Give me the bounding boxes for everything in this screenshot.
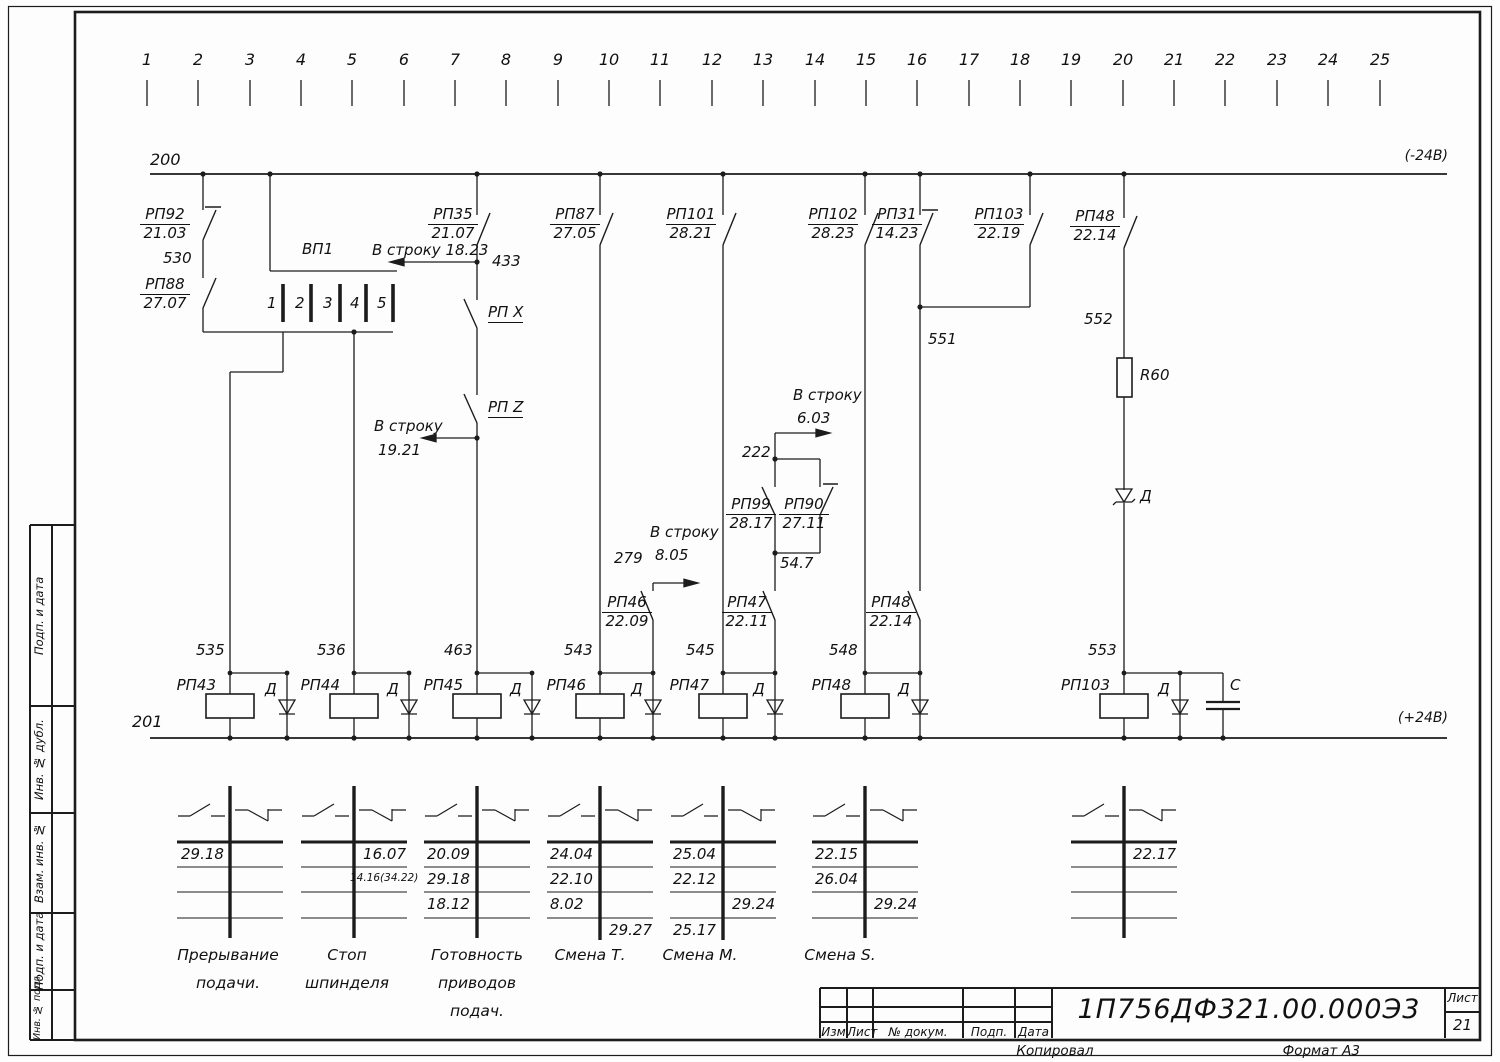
wire-54-7: 54.7: [780, 554, 813, 572]
ruler-1: 1: [135, 50, 159, 69]
stamp-podp: Подп.: [963, 1025, 1015, 1039]
bus-201-label: 201: [132, 712, 163, 731]
contact-label-rp48-bottom: РП4822.14: [866, 594, 916, 630]
contact-label-rp31: РП3114.23: [872, 206, 922, 242]
contact-label-rp90: РП9027.11: [779, 496, 829, 532]
contact-label-rp46: РП4622.09: [602, 594, 652, 630]
ruler-16: 16: [905, 50, 929, 69]
diode-label-3: Д: [510, 680, 522, 698]
row-link-8-05-label: В строку: [650, 523, 719, 541]
resistor-r60-label: R60: [1140, 366, 1170, 384]
contact-label-rp103: РП10322.19: [974, 206, 1024, 242]
wire-463: 463: [444, 641, 473, 659]
document-number: 1П756ДФ321.00.000Э3: [1055, 994, 1443, 1025]
table-3-value: 18.12: [427, 895, 473, 913]
wire-279: 279: [614, 549, 643, 567]
coil-label-rp44: РП44: [276, 676, 340, 694]
table-2-value: 16.07: [358, 845, 406, 863]
ruler-6: 6: [392, 50, 416, 69]
diode-label-7: Д: [1158, 680, 1170, 698]
wire-222: 222: [742, 443, 771, 461]
table-6-value: 26.04: [815, 870, 861, 888]
contact-label-rpx: РП X: [488, 303, 523, 321]
resistor-r60-symbol: [1117, 358, 1132, 397]
wire-433: 433: [492, 252, 521, 270]
table-contact-glyphs: [178, 804, 1176, 821]
stamp-izm: Изм: [820, 1025, 847, 1039]
coil-label-rp48: РП48: [787, 676, 851, 694]
row-link-19-21-ref: 19.21: [378, 441, 421, 459]
contact-label-rp99: РП9928.17: [726, 496, 776, 532]
stamp-docum: № докум.: [873, 1025, 963, 1039]
wire-543: 543: [564, 641, 593, 659]
row-link-6-03-label: В строку: [793, 386, 862, 404]
ruler-8: 8: [494, 50, 518, 69]
zener-diode-symbol: [1113, 489, 1135, 505]
table-4-value: 24.04: [550, 845, 596, 863]
contact-label-rp47: РП4722.11: [722, 594, 772, 630]
table-4-value: 29.27: [604, 921, 652, 939]
ruler-2: 2: [186, 50, 210, 69]
table-4-value: 22.10: [550, 870, 596, 888]
table-5-value: 29.24: [727, 895, 775, 913]
ruler-4: 4: [289, 50, 313, 69]
diode-label-4: Д: [631, 680, 643, 698]
wire-552: 552: [1084, 310, 1113, 328]
table-5-caption: Смена М.: [625, 946, 775, 964]
contact-label-rp102: РП10228.23: [808, 206, 858, 242]
wire-545: 545: [686, 641, 715, 659]
sidebar-cell-vzam-inv: Взам. инв. №: [32, 813, 52, 913]
capacitor-symbol: [1206, 702, 1240, 709]
coil-label-rp45: РП45: [399, 676, 463, 694]
schematic-sheet: 1 2 3 4 5 6 7 8 9 10 11 12 13 14 15 16 1…: [0, 0, 1500, 1062]
ruler-13: 13: [751, 50, 775, 69]
diode-label-5: Д: [753, 680, 765, 698]
contact-reference-tables: [177, 786, 1177, 940]
ruler-3: 3: [238, 50, 262, 69]
coil-label-rp43: РП43: [152, 676, 216, 694]
table-5-value: 25.04: [673, 845, 719, 863]
contact-label-rpz: РП Z: [488, 398, 523, 416]
capacitor-label: С: [1230, 676, 1240, 694]
zener-diode-label: Д: [1140, 487, 1152, 505]
table-6-caption: Смена S.: [765, 946, 915, 964]
table-3-value: 20.09: [427, 845, 473, 863]
sidebar-cell-inv-podl: Инв. № подл.: [32, 990, 52, 1040]
table-1-value: 29.18: [181, 845, 227, 863]
table-5-value: 22.12: [673, 870, 719, 888]
row-link-6-03-ref: 6.03: [797, 409, 830, 427]
table-4-value: 8.02: [550, 895, 596, 913]
contact-label-rp48-top: РП4822.14: [1070, 208, 1120, 244]
ruler-11: 11: [648, 50, 672, 69]
vp1-pin-3: 3: [323, 294, 333, 312]
ruler-24: 24: [1316, 50, 1340, 69]
kopiroval-label: Копировал: [1000, 1043, 1110, 1059]
wire-536: 536: [317, 641, 346, 659]
table-2-caption: Стоп: [272, 946, 422, 964]
ruler-18: 18: [1008, 50, 1032, 69]
sidebar-cell-podp-i-data-1: Подп. и дата: [32, 525, 52, 706]
wire-535: 535: [196, 641, 225, 659]
sheet-label: Лист: [1445, 991, 1480, 1005]
diode-label-2: Д: [387, 680, 399, 698]
wire-553: 553: [1088, 641, 1117, 659]
ruler-19: 19: [1059, 50, 1083, 69]
contact-label-rp35: РП3521.07: [428, 206, 478, 242]
ruler-17: 17: [957, 50, 981, 69]
ruler-15: 15: [854, 50, 878, 69]
ruler-20: 20: [1111, 50, 1135, 69]
bus-200-voltage: (-24В): [1388, 148, 1448, 164]
row-link-19-21-label: В строку: [374, 417, 443, 435]
table-3-caption: подач.: [402, 1002, 552, 1020]
table-3-caption: приводов: [402, 974, 552, 992]
wire-548: 548: [829, 641, 858, 659]
sheet-number: 21: [1445, 1016, 1480, 1034]
ruler-7: 7: [443, 50, 467, 69]
table-5-value: 25.17: [673, 921, 719, 939]
wire-551: 551: [928, 330, 957, 348]
diode-label-1: Д: [265, 680, 277, 698]
vp1-label: ВП1: [302, 240, 333, 258]
diode-label-6: Д: [898, 680, 910, 698]
vp1-pin-5: 5: [377, 294, 387, 312]
ruler-9: 9: [546, 50, 570, 69]
coil-label-rp103: РП103: [1046, 676, 1110, 694]
bus-200-label: 200: [150, 150, 181, 169]
ruler-5: 5: [340, 50, 364, 69]
coil-label-rp46: РП46: [522, 676, 586, 694]
vp1-pin-4: 4: [350, 294, 360, 312]
row-link-8-05-ref: 8.05: [655, 546, 688, 564]
contact-label-rp92: РП9221.03: [140, 206, 190, 242]
ruler-10: 10: [597, 50, 621, 69]
contact-label-rp101: РП10128.21: [666, 206, 716, 242]
column-ruler-ticks: [147, 80, 1380, 106]
vp1-pin-2: 2: [295, 294, 305, 312]
ruler-23: 23: [1265, 50, 1289, 69]
coil-label-rp47: РП47: [645, 676, 709, 694]
table-2-caption: шпинделя: [272, 974, 422, 992]
wire-530: 530: [163, 249, 192, 267]
ruler-25: 25: [1368, 50, 1392, 69]
table-7-value: 22.17: [1128, 845, 1176, 863]
ruler-14: 14: [803, 50, 827, 69]
ruler-12: 12: [700, 50, 724, 69]
table-3-value: 29.18: [427, 870, 473, 888]
format-value: А3: [1336, 1043, 1366, 1059]
stamp-data: Дата: [1015, 1025, 1052, 1039]
table-2-value: 14.16(34.22): [350, 872, 406, 884]
vp1-pin-1: 1: [267, 294, 277, 312]
table-6-value: 29.24: [869, 895, 917, 913]
stamp-list: Лист: [847, 1025, 873, 1039]
sidebar-cell-inv-dubl: Инв. № дубл.: [32, 706, 52, 813]
table-6-value: 22.15: [815, 845, 861, 863]
ruler-22: 22: [1213, 50, 1237, 69]
row-link-18-23: В строку 18.23: [372, 241, 488, 259]
ruler-21: 21: [1162, 50, 1186, 69]
row-link-arrows: [390, 258, 830, 587]
bus-201-voltage: (+24В): [1388, 710, 1448, 726]
contact-label-rp87: РП8727.05: [550, 206, 600, 242]
contact-label-rp88: РП8827.07: [140, 276, 190, 312]
